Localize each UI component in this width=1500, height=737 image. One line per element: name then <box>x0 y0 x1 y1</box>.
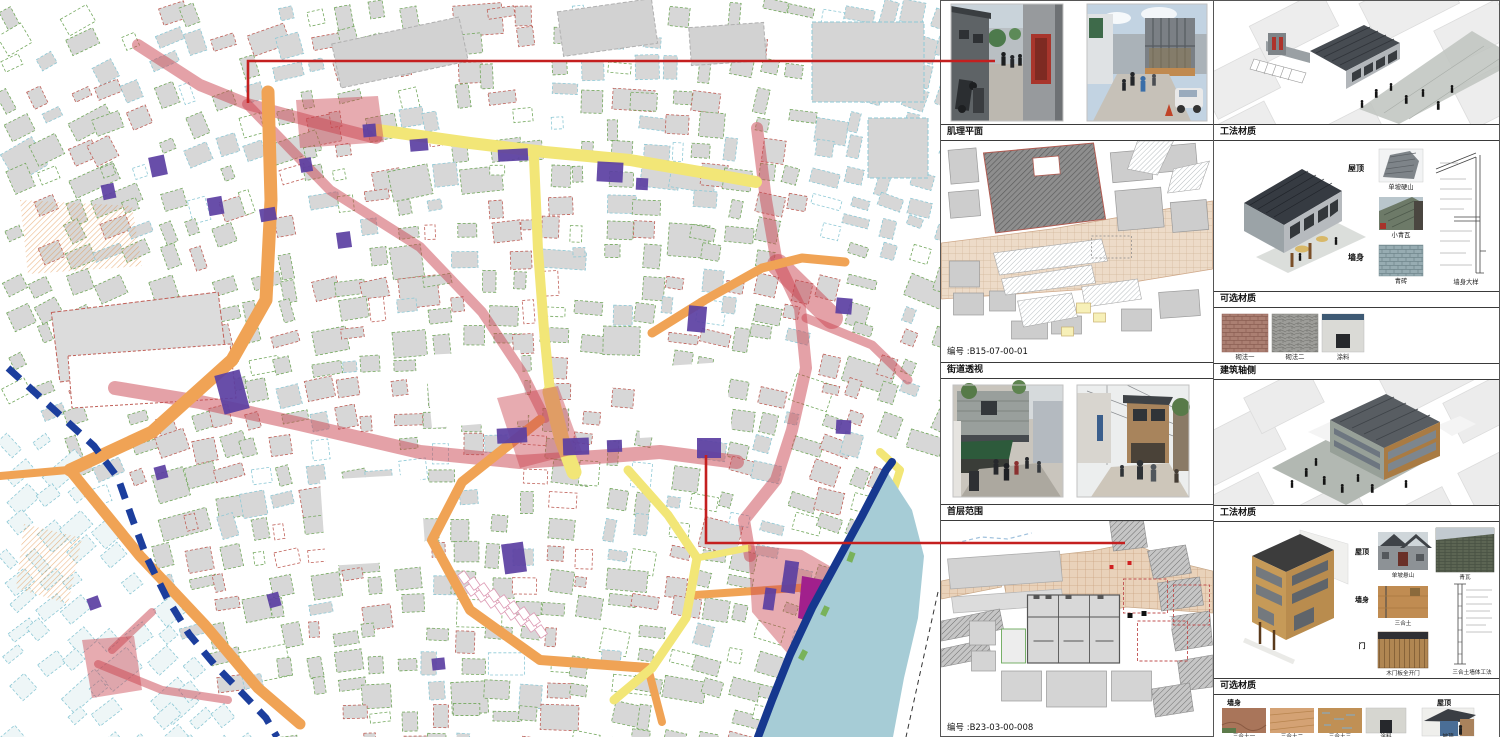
panel-label-method-materials-bottom: 工法材质 <box>1214 505 1499 522</box>
roof-sample-2-image <box>1379 197 1423 230</box>
optional-materials-top-swatches: 砌法一 砌法二 涂料 <box>1214 308 1499 363</box>
detail-caption: 墙身大样 <box>1453 277 1478 286</box>
door-sample-image <box>1378 632 1428 668</box>
method-materials-bottom-figure: 屋顶 单坡悬山 青瓦 墙身 <box>1214 522 1499 678</box>
swatch-caption: 砌法二 <box>1286 352 1305 361</box>
design-guideline-sheet: 肌理平面 <box>0 0 1500 737</box>
ground-floor-plan-panel <box>941 521 1213 722</box>
masonry-swatch-1 <box>1222 314 1268 352</box>
panel-column-right: 工法材质 <box>1213 1 1499 736</box>
earth-swatch-3 <box>1318 708 1362 733</box>
wall-sample-image <box>1379 245 1423 276</box>
swatch-caption: 砌法一 <box>1236 352 1256 361</box>
paint-swatch <box>1322 314 1364 352</box>
wall-group-label: 墙身 <box>1348 252 1364 262</box>
texture-plan-drawing <box>941 141 1213 346</box>
optional-materials-bottom-swatches: 墙身 三合土一 三合土二 <box>1214 695 1499 737</box>
wall-group-label: 墙身 <box>1355 595 1369 604</box>
perspective-photo-1 <box>953 380 1063 497</box>
roof-sample-1-image <box>1379 149 1423 182</box>
panel-label-method-materials-top: 工法材质 <box>1214 124 1499 141</box>
street-photos-top <box>941 1 1213 124</box>
material-caption: 三合土 <box>1395 619 1412 627</box>
swatch-caption: 涂料 <box>1337 352 1350 361</box>
district-map-drawing <box>0 0 940 737</box>
panel-label-text: 街道透视 <box>947 365 983 375</box>
material-caption: 青瓦 <box>1459 573 1471 581</box>
roof-sample-1-image <box>1378 532 1432 570</box>
roof-group-label: 屋顶 <box>1348 163 1364 173</box>
roof-group-label: 屋顶 <box>1437 698 1451 707</box>
plan-code-text: 编号 :B23-03-00-008 <box>947 723 1033 733</box>
plan-code: 编号 :B23-03-00-008 <box>941 722 1213 736</box>
method-materials-bottom-panel: 屋顶 单坡悬山 青瓦 墙身 <box>1214 522 1499 678</box>
courtyard-axon-drawing <box>1214 1 1499 124</box>
panel-label-text: 肌理平面 <box>947 127 983 137</box>
roof-group-label: 屋顶 <box>1355 547 1369 556</box>
wall-group-label: 墙身 <box>1227 698 1241 707</box>
panel-label-text: 建筑轴侧 <box>1220 366 1256 376</box>
panel-label-text: 工法材质 <box>1220 508 1256 518</box>
roof-swatch-image <box>1422 708 1476 736</box>
guideline-panels: 肌理平面 <box>940 0 1500 737</box>
street-perspective-photos <box>941 379 1213 504</box>
earth-swatch-2 <box>1270 708 1314 733</box>
street-photo-proposed <box>1087 4 1207 121</box>
panel-label-texture-plan: 肌理平面 <box>941 124 1213 141</box>
ground-floor-plan-drawing <box>941 521 1213 722</box>
panel-label-street-perspective: 街道透视 <box>941 362 1213 379</box>
wall-sample-image <box>1378 586 1428 618</box>
material-caption: 单坡悬山 <box>1392 571 1414 579</box>
optional-materials-top-panel: 砌法一 砌法二 涂料 <box>1214 308 1499 363</box>
courtyard-axon-panel <box>1214 1 1499 124</box>
method-materials-top-figure: 屋顶 单坡硬山 小青瓦 墙身 <box>1214 141 1499 291</box>
material-caption: 单坡硬山 <box>1388 182 1413 191</box>
panel-label-optional-materials-top: 可选材质 <box>1214 291 1499 308</box>
material-caption: 青砖 <box>1395 276 1408 285</box>
panel-label-text: 工法材质 <box>1220 127 1256 137</box>
building-axon-drawing <box>1214 380 1499 505</box>
panel-label-optional-materials-bottom: 可选材质 <box>1214 678 1499 695</box>
material-caption: 小青瓦 <box>1392 230 1412 239</box>
city-district-map <box>0 0 940 737</box>
detail-caption: 三合土墙体工法 <box>1452 668 1492 676</box>
panel-label-text: 首层范围 <box>947 507 983 517</box>
door-group-label: 门 <box>1359 641 1366 650</box>
plan-code: 编号 :B15-07-00-01 <box>941 346 1213 362</box>
optional-materials-bottom-panel: 墙身 三合土一 三合土二 <box>1214 695 1499 737</box>
earth-swatch-1 <box>1222 708 1266 733</box>
panel-label-text: 可选材质 <box>1220 681 1256 691</box>
plan-code-text: 编号 :B15-07-00-01 <box>947 347 1028 357</box>
material-caption: 木门板全开门 <box>1386 669 1420 677</box>
roof-sample-2-image <box>1436 528 1494 572</box>
panel-label-building-axon: 建筑轴侧 <box>1214 363 1499 380</box>
panel-column-left: 肌理平面 <box>941 1 1213 736</box>
panel-label-text: 可选材质 <box>1220 294 1256 304</box>
perspective-photo-2 <box>1077 385 1190 497</box>
method-materials-top-panel: 屋顶 单坡硬山 小青瓦 墙身 <box>1214 141 1499 291</box>
texture-plan-panel <box>941 141 1213 346</box>
street-perspective-panel <box>941 379 1213 504</box>
street-photo-existing <box>951 4 1063 121</box>
paint-swatch <box>1366 708 1406 733</box>
panel-label-ground-floor: 首层范围 <box>941 504 1213 521</box>
building-axon-panel <box>1214 380 1499 505</box>
street-photos-top-panel <box>941 1 1213 124</box>
masonry-swatch-2 <box>1272 314 1318 352</box>
